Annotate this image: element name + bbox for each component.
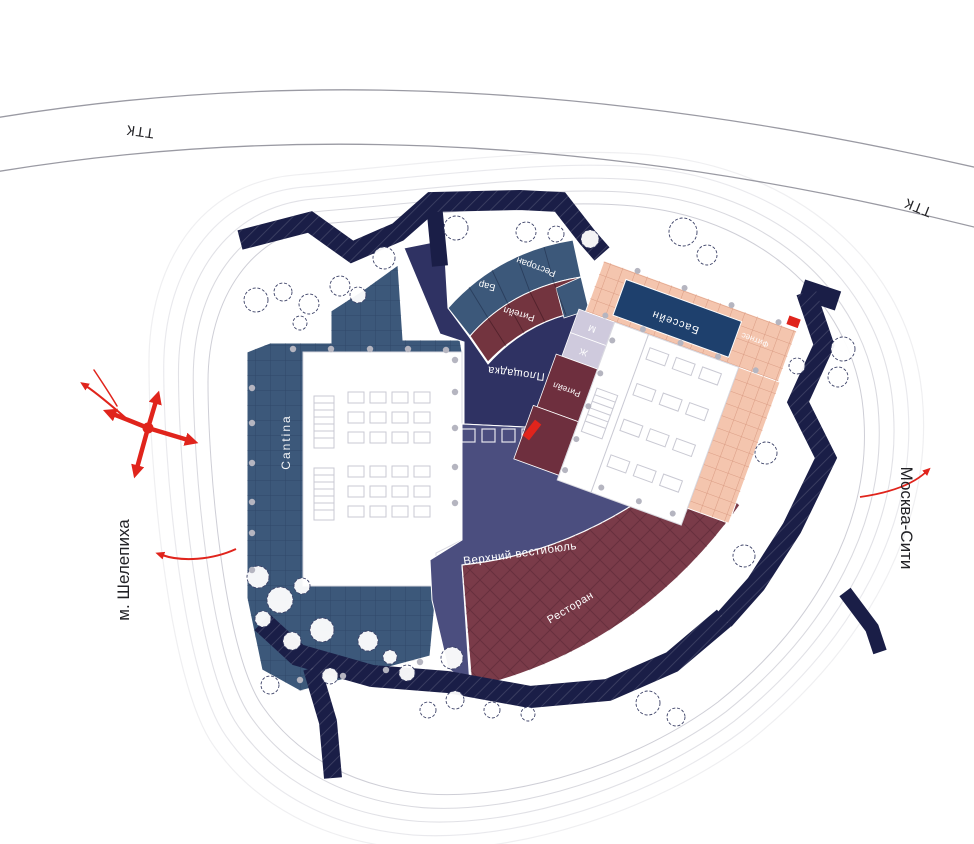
path-top-stub: [434, 204, 440, 266]
path-bottom-right: [845, 592, 880, 652]
site-plan-drawing: Бассейн Фитнес М Ж Ритейл: [0, 0, 974, 844]
ttk-right-label: ТТК: [902, 195, 934, 220]
metro-label: м. Шелепиха: [114, 519, 133, 621]
ttk-road-lower-edge: [0, 144, 974, 228]
site-plan-canvas: Бассейн Фитнес М Ж Ритейл: [0, 0, 974, 844]
north-compass-sketch: [86, 370, 188, 468]
city-label: Москва-Сити: [897, 467, 916, 570]
direction-arrow-metro: [162, 549, 236, 559]
entrance-marker-pool: [786, 316, 800, 329]
cantina-label: Cantina: [279, 414, 293, 469]
ttk-left-label: ТТК: [125, 122, 155, 142]
